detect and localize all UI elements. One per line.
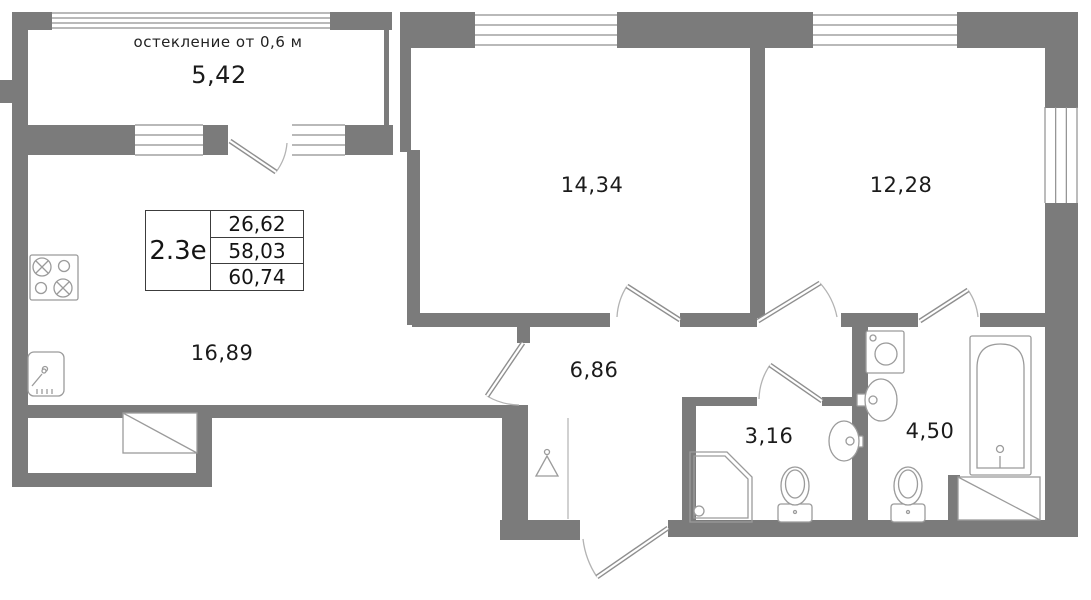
stove-icon [30, 255, 78, 300]
wall [750, 48, 765, 318]
door-swing-arc [617, 286, 627, 317]
bathroom-door [759, 365, 822, 401]
bathtub-icon [970, 336, 1031, 475]
area-label-balcony: 5,42 [159, 61, 279, 89]
wall [203, 125, 228, 155]
area-label-kitchen-living: 16,89 [162, 341, 282, 365]
hanger-icon [536, 450, 558, 477]
wall [1045, 203, 1078, 537]
wall [517, 313, 530, 343]
window [135, 125, 203, 155]
wall [841, 313, 918, 327]
door-swing-arc [759, 365, 770, 399]
fixture-part [846, 437, 854, 445]
ensuite-door [920, 290, 978, 321]
shower-icon [690, 452, 752, 522]
wall [617, 12, 813, 48]
wall [345, 125, 393, 155]
wall [957, 12, 1078, 48]
fixture-part [42, 369, 46, 373]
window [52, 13, 330, 28]
wall [12, 405, 510, 418]
kitchen-sink-icon [28, 352, 64, 396]
wall [412, 313, 610, 327]
apartment-areas: 26,62 58,03 60,74 [211, 211, 303, 290]
area-value-total: 58,03 [211, 238, 303, 265]
door-leaf-inner [770, 365, 822, 401]
toilet-icon [891, 467, 925, 522]
window [475, 15, 617, 45]
wall [680, 313, 757, 327]
fixture-part [36, 283, 47, 294]
wall [12, 473, 212, 487]
fixture-part [28, 352, 64, 396]
fixture-part [545, 450, 550, 455]
bay-slab-icon [123, 413, 197, 453]
apartment-info-table: 2.3е 26,62 58,03 60,74 [145, 210, 304, 291]
wall [330, 12, 392, 30]
floor-plan: остекление от 0,6 м 5,42 14,34 12,28 16,… [0, 0, 1091, 600]
area-label-ensuite-bathroom: 4,50 [870, 419, 990, 443]
door-leaf-inner [487, 343, 523, 396]
fixture-part [997, 446, 1004, 453]
door-swing-arc [276, 143, 287, 172]
wall [400, 48, 411, 152]
wall [384, 30, 389, 127]
wall [500, 520, 580, 540]
door-leaf-inner [627, 286, 680, 320]
wall [980, 313, 1045, 327]
area-label-hall: 6,86 [534, 358, 654, 382]
window [1045, 107, 1077, 203]
wall [196, 415, 212, 475]
fixture-part [536, 456, 558, 476]
door-swing-arc [487, 396, 519, 405]
balcony-door [230, 141, 287, 172]
door-swing-arc [583, 539, 597, 577]
area-label-bathroom: 3,16 [709, 424, 829, 448]
bedroom1-door [617, 286, 680, 320]
area-label-bedroom-1: 14,34 [532, 173, 652, 197]
fixture-part [875, 343, 897, 365]
kitchen-door [487, 343, 523, 405]
fixture-part [694, 506, 704, 516]
wall [502, 405, 528, 525]
wall [28, 125, 135, 155]
wall [0, 80, 12, 103]
entrance-door [583, 528, 668, 577]
door-leaf-inner [920, 290, 968, 321]
door-swing-arc [968, 290, 978, 317]
window [292, 125, 345, 155]
area-label-bedroom-2: 12,28 [841, 173, 961, 197]
wall [407, 150, 420, 325]
door-swing-arc [820, 283, 837, 317]
door-leaf-inner [758, 283, 820, 321]
fixture-part [869, 396, 877, 404]
window [813, 15, 957, 45]
fixture-part [786, 470, 805, 498]
duct-shaft-icon [958, 477, 1040, 520]
fixture-part [907, 511, 910, 514]
fixture-part [794, 511, 797, 514]
door-leaf-inner [597, 528, 668, 577]
fixture-part [870, 335, 876, 341]
area-value-total-with-balcony: 60,74 [211, 264, 303, 290]
washing-machine-icon [866, 331, 904, 373]
wall [682, 397, 757, 406]
wall [1045, 48, 1078, 108]
floor-plan-drawing [0, 0, 1091, 600]
bedroom2-door [758, 283, 837, 321]
door-leaf-inner [230, 141, 276, 172]
wall [400, 12, 475, 48]
fixture-part [59, 261, 70, 272]
fixture-part [899, 470, 918, 498]
apartment-type-label: 2.3е [146, 211, 211, 290]
area-value-living: 26,62 [211, 211, 303, 238]
glazing-annotation: остекление от 0,6 м [98, 33, 338, 51]
toilet-icon [778, 467, 812, 522]
